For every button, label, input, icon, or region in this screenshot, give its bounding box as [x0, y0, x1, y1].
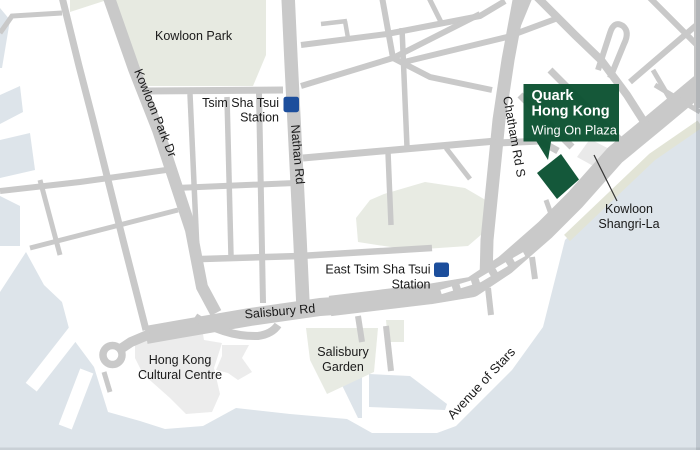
svg-text:Shangri-La: Shangri-La [598, 217, 659, 231]
svg-text:Wing On Plaza: Wing On Plaza [532, 123, 618, 138]
svg-text:Tsim Sha Tsui: Tsim Sha Tsui [202, 96, 279, 110]
svg-text:Cultural Centre: Cultural Centre [138, 368, 222, 382]
svg-text:Kowloon Park: Kowloon Park [155, 29, 233, 43]
svg-text:Hong Kong: Hong Kong [532, 104, 610, 120]
svg-text:Salisbury: Salisbury [317, 345, 369, 359]
svg-text:Station: Station [392, 278, 431, 292]
svg-text:East Tsim Sha Tsui: East Tsim Sha Tsui [325, 263, 430, 277]
svg-text:Garden: Garden [322, 360, 364, 374]
svg-text:Hong Kong: Hong Kong [149, 353, 212, 367]
svg-text:Quark: Quark [532, 88, 575, 104]
svg-text:Station: Station [240, 111, 279, 125]
svg-text:Kowloon: Kowloon [605, 202, 653, 216]
